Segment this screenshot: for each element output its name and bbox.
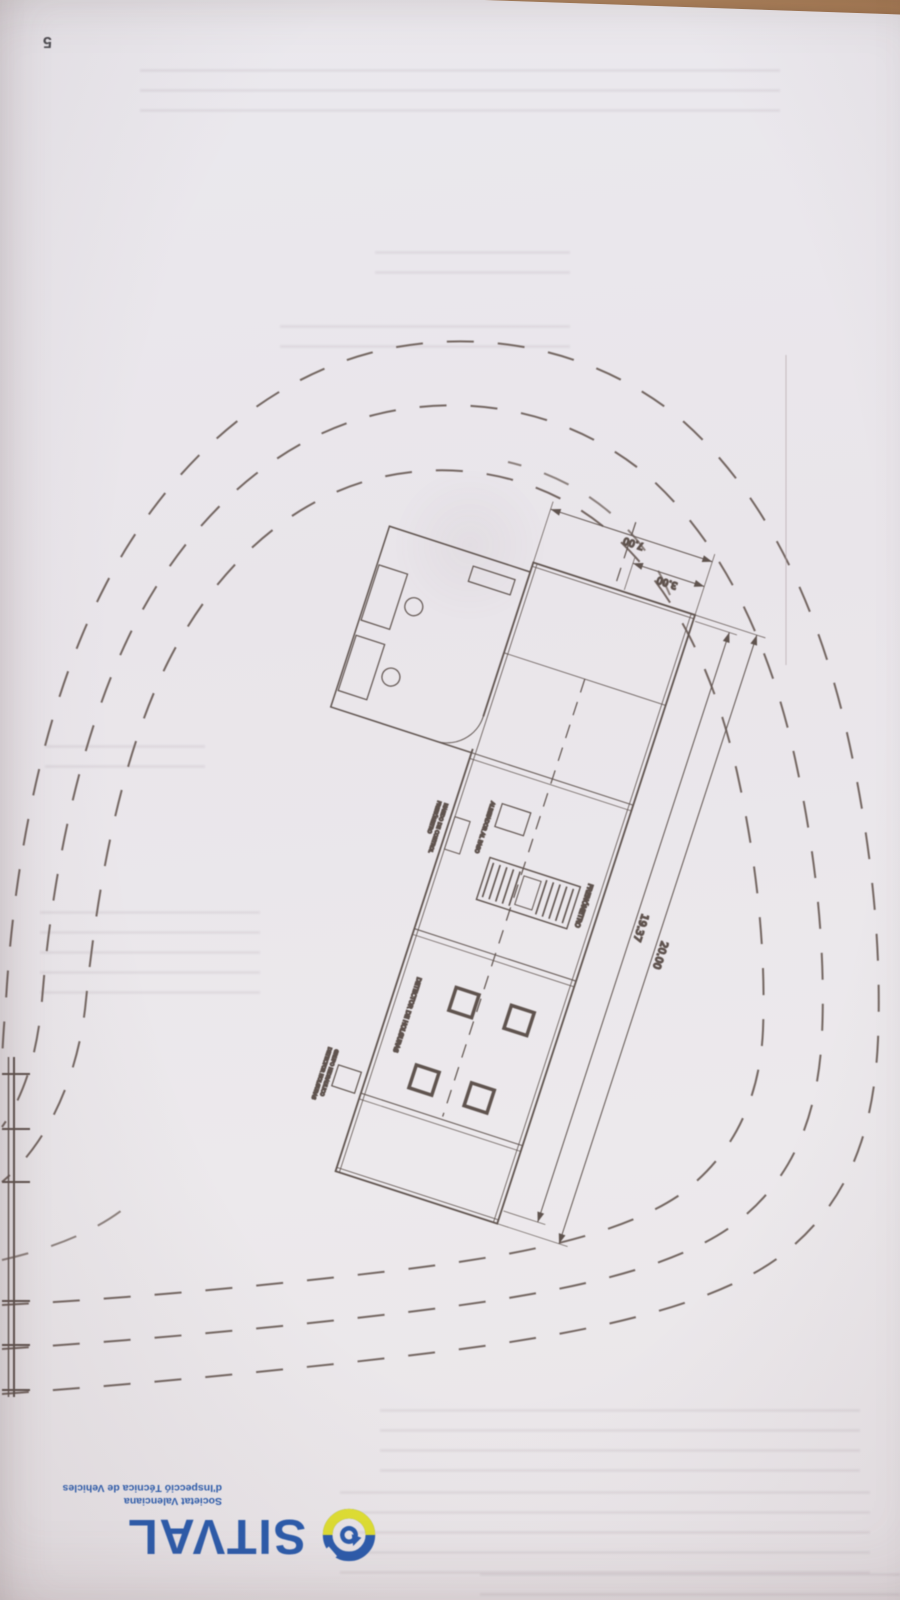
office-desk xyxy=(338,635,384,699)
office-shelf xyxy=(468,566,515,595)
tagline-line1: Societat Valenciana xyxy=(63,1495,222,1508)
pit-cover-square xyxy=(449,987,479,1017)
frenometro-label: FRENÓMETRO xyxy=(573,883,596,929)
pit-cover-squares xyxy=(409,983,534,1117)
brake-tester-symbol xyxy=(476,858,580,929)
dimension-lines xyxy=(336,502,786,1247)
tagline-line2: d'Inspecció Técnica de Vehicles xyxy=(63,1482,222,1495)
dim-line-19-37 xyxy=(538,632,730,1222)
inspection-building: ALINEADOR AL PASO FRENÓMETRO MANDO DE CO… xyxy=(195,443,793,1248)
sitval-logo: SITVAL Societat Valenciana d'Inspecció T… xyxy=(63,1482,380,1566)
brand-tagline: Societat Valenciana d'Inspecció Técnica … xyxy=(63,1482,222,1507)
alineador-label: ALINEADOR AL PASO xyxy=(473,801,495,854)
building-cross-walls xyxy=(359,653,666,1152)
grupo-hidraulico-box xyxy=(332,1065,362,1093)
office-desk xyxy=(361,565,407,629)
sitval-logo-text: SITVAL Societat Valenciana d'Inspecció T… xyxy=(63,1482,306,1566)
track-ring-middle xyxy=(2,405,823,1349)
office-annex xyxy=(331,526,530,752)
site-boundary-bar xyxy=(2,1057,30,1397)
alineador-plate xyxy=(495,804,531,836)
track-guide-arc xyxy=(508,462,670,595)
photo-scene: ALINEADOR AL PASO FRENÓMETRO MANDO DE CO… xyxy=(0,0,900,1600)
office-chair xyxy=(402,595,425,618)
site-plan-drawing: ALINEADOR AL PASO FRENÓMETRO MANDO DE CO… xyxy=(0,0,900,1600)
document-page: ALINEADOR AL PASO FRENÓMETRO MANDO DE CO… xyxy=(0,0,900,1600)
office-chair xyxy=(380,666,403,689)
door-arc xyxy=(435,705,483,753)
pit-cover-square xyxy=(464,1083,494,1113)
pit-cover-square xyxy=(409,1065,439,1095)
brand-name: SITVAL xyxy=(63,1511,306,1560)
detector-label: DETECTOR DE HOLGURAS xyxy=(391,976,422,1053)
track-guide-arc xyxy=(2,1202,132,1260)
track-ring-outer xyxy=(2,341,879,1394)
dim-value-3-00: 3.00 xyxy=(655,574,679,591)
sitval-logo-icon xyxy=(318,1504,380,1566)
page-number: 5 xyxy=(43,32,52,50)
test-track-dashed-loop xyxy=(2,341,879,1394)
pit-cover-square xyxy=(504,1005,534,1035)
track-ring-inner xyxy=(2,470,764,1305)
